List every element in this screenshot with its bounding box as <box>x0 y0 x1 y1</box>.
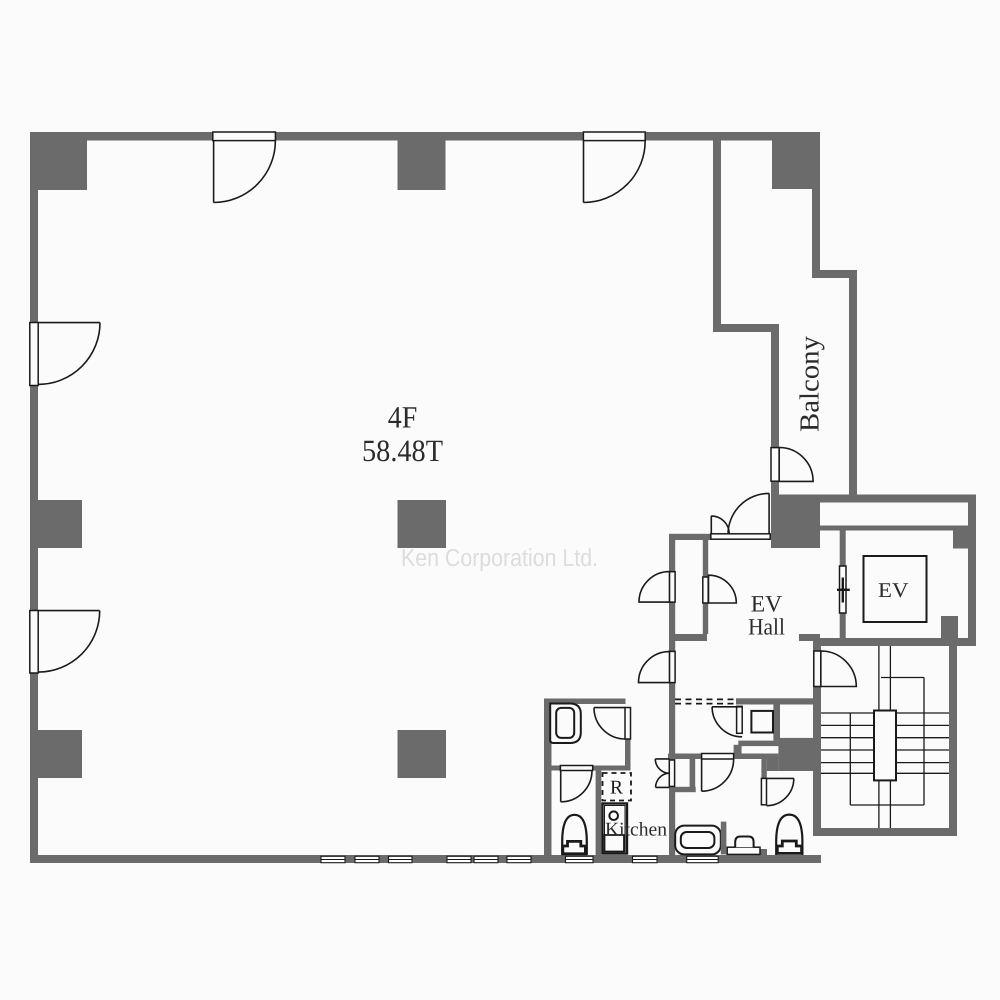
svg-text:4F: 4F <box>388 400 418 435</box>
svg-text:Balcony: Balcony <box>794 336 825 432</box>
svg-text:Hall: Hall <box>748 614 785 640</box>
svg-text:EV: EV <box>878 578 909 602</box>
svg-text:Ken Corporation Ltd.: Ken Corporation Ltd. <box>401 545 598 572</box>
svg-text:R: R <box>610 778 623 799</box>
svg-text:Kitchen: Kitchen <box>605 820 667 841</box>
svg-text:58.48T: 58.48T <box>362 433 443 468</box>
